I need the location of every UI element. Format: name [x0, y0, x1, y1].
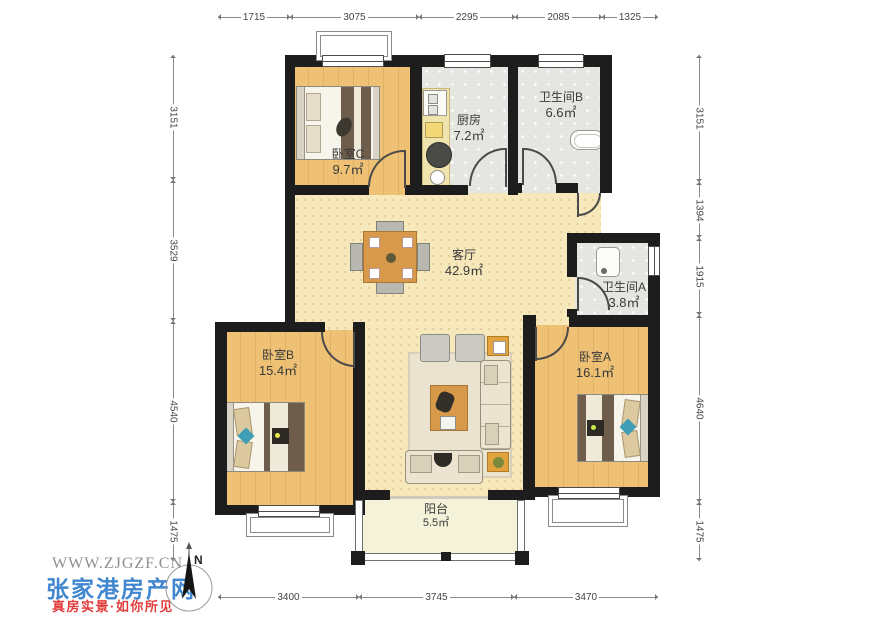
watermark-slogan: 真房实景·如你所见: [52, 596, 174, 615]
tray-dot: [591, 425, 596, 430]
balcony-glass-left: [355, 500, 363, 553]
bed-bedroom-a: [577, 394, 649, 462]
living-room-label: 客厅 42.9㎡: [424, 248, 504, 279]
sofa-item: [434, 453, 452, 467]
balcony-post: [351, 551, 365, 565]
room-area: 6.6㎡: [521, 105, 601, 121]
dimension-top-1: 1715: [218, 10, 290, 24]
bed-tray: [587, 420, 604, 436]
dimension-label: 4540: [168, 398, 179, 424]
room-name: 阳台: [396, 502, 476, 517]
door-leaf-bathroomA: [577, 277, 579, 311]
balcony-threshold: [390, 496, 488, 499]
dimension-label: 1915: [694, 263, 705, 289]
sink-basin: [428, 94, 438, 104]
plant: [493, 457, 504, 468]
plate: [369, 268, 380, 279]
bed-headboard: [640, 395, 648, 461]
tray-dot: [275, 433, 280, 438]
armchair: [420, 334, 450, 362]
dimension-label: 3151: [694, 105, 705, 131]
side-table: [487, 336, 509, 356]
wall-bathA-top: [567, 233, 660, 243]
window-bedroomC: [322, 55, 384, 67]
bathtub-inner: [574, 134, 602, 148]
side-table: [487, 452, 509, 472]
dimension-right-1: 3151: [692, 55, 706, 182]
table-centerpiece: [386, 253, 396, 263]
wall-bedroomB-top: [215, 322, 325, 332]
door-leaf-bedroomB: [353, 332, 355, 368]
bed-pillow: [233, 440, 253, 469]
room-area: 7.2㎡: [429, 128, 509, 144]
balcony-label: 阳台 5.5㎡: [396, 502, 476, 531]
wall-living-bottom: [365, 490, 390, 500]
dimension-right-2: 1394: [692, 182, 706, 238]
wall-bedroomC-bottom: [285, 185, 369, 195]
dimension-label: 4640: [694, 395, 705, 421]
wall-bathA-left: [567, 233, 577, 277]
bed-headboard: [297, 87, 305, 159]
bed-bedroom-b: [225, 402, 305, 472]
wall-kitchen-right: [508, 55, 518, 195]
dimension-label: 3470: [573, 592, 599, 603]
door-leaf-bedroomA: [535, 327, 537, 361]
dimension-label: 3400: [275, 592, 301, 603]
door-leaf-bathroomB: [522, 148, 524, 185]
dimension-label: 1715: [241, 12, 267, 23]
bathroom-b-label: 卫生间B 6.6㎡: [521, 90, 601, 121]
door-leaf-bedroomC: [404, 150, 406, 188]
dimension-top-4: 2085: [515, 10, 602, 24]
plate: [402, 268, 413, 279]
dimension-label: 2295: [454, 12, 480, 23]
window-bathroomA: [648, 246, 660, 276]
window-bedroomA: [558, 487, 620, 499]
washing-machine: [596, 247, 620, 277]
room-name: 卧室A: [555, 350, 635, 365]
bed-pillow: [621, 430, 640, 458]
dimension-label: 3151: [168, 104, 179, 130]
sofa-cushion: [484, 365, 498, 385]
washer-dial: [601, 268, 607, 274]
coffee-table: [430, 385, 468, 431]
lamp: [493, 341, 506, 354]
dimension-label: 3745: [423, 592, 449, 603]
room-area: 3.8㎡: [589, 295, 659, 311]
bedroom-a-label: 卧室A 16.1㎡: [555, 350, 635, 381]
door-leaf-entry: [577, 193, 579, 217]
dimension-bottom-3: 3470: [514, 590, 658, 604]
room-area: 15.4㎡: [238, 363, 318, 379]
room-name: 卧室C: [308, 147, 388, 162]
floor-plan-canvas: 卧室C 9.7㎡ 厨房 7.2㎡ 卫生间B 6.6㎡ 客厅 42.9㎡ 卫生间A…: [0, 0, 880, 625]
dimension-label: 1394: [694, 197, 705, 223]
room-area: 42.9㎡: [424, 263, 504, 279]
balcony-glass-right: [517, 500, 525, 553]
dining-table: [363, 231, 417, 283]
sofa-long: [480, 360, 511, 450]
dimension-top-2: 3075: [290, 10, 419, 24]
sofa-cushion: [458, 455, 480, 473]
remote: [440, 416, 456, 430]
kitchen-stove: [426, 142, 452, 168]
window-kitchen: [444, 54, 491, 68]
dimension-right-3: 1915: [692, 238, 706, 315]
wall-bedroomC-right: [410, 55, 422, 195]
room-area: 16.1㎡: [555, 365, 635, 381]
wall-right-upper: [600, 55, 612, 193]
dimension-bottom-1: 3400: [218, 590, 359, 604]
room-name: 卫生间A: [589, 280, 659, 295]
compass-north-label: N: [194, 553, 203, 567]
dimension-left-1: 3151: [166, 55, 180, 180]
dimension-label: 1475: [694, 518, 705, 544]
dimension-label: 1325: [617, 12, 643, 23]
dimension-top-5: 1325: [602, 10, 658, 24]
bedroom-b-label: 卧室B 15.4㎡: [238, 348, 318, 379]
plate: [402, 237, 413, 248]
dimension-label: 1475: [168, 518, 179, 544]
balcony-post: [515, 551, 529, 565]
dimension-label: 2085: [545, 12, 571, 23]
wall-bathB-bottom: [508, 183, 522, 193]
tray: [434, 390, 456, 415]
wall-bedroomA-left: [523, 315, 535, 500]
wall-kitchen-bottom: [418, 185, 468, 195]
window-bathroomB: [538, 54, 584, 68]
bedroom-c-label: 卧室C 9.7㎡: [308, 147, 388, 178]
dimension-right-5: 1475: [692, 502, 706, 561]
sofa-loveseat: [405, 450, 483, 484]
dimension-label: 3529: [168, 237, 179, 263]
dimension-left-3: 4540: [166, 321, 180, 502]
dimension-bottom-2: 3745: [359, 590, 514, 604]
dimension-left-2: 3529: [166, 180, 180, 321]
room-name: 卧室B: [238, 348, 318, 363]
wall-bathB-bottom: [601, 183, 612, 193]
wall-left-lower: [215, 322, 227, 515]
wall-bedroomA-top: [569, 315, 660, 327]
wall-living-bottom: [488, 490, 533, 500]
dimension-label: 3075: [341, 12, 367, 23]
balcony-mullion: [441, 552, 451, 561]
dining-chair: [350, 243, 363, 271]
kitchen-pot: [430, 170, 445, 185]
bathtub: [570, 130, 604, 150]
bay-window-bedroomA: [548, 495, 628, 527]
sofa-cushion: [410, 455, 432, 473]
window-bedroomB: [258, 505, 320, 517]
bed-pillow: [306, 93, 321, 121]
room-name: 客厅: [424, 248, 504, 263]
sofa-cushion: [485, 423, 499, 445]
plate: [369, 237, 380, 248]
room-area: 9.7㎡: [308, 162, 388, 178]
wall-bathB-bottom: [556, 183, 578, 193]
armchair: [455, 334, 485, 362]
dimension-right-4: 4640: [692, 315, 706, 502]
kitchen-label: 厨房 7.2㎡: [429, 113, 509, 144]
room-name: 卫生间B: [521, 90, 601, 105]
bathroom-a-label: 卫生间A 3.8㎡: [589, 280, 659, 311]
room-area: 5.5㎡: [396, 517, 476, 531]
bed-tray: [272, 428, 289, 444]
compass-icon: [162, 542, 216, 616]
room-name: 厨房: [429, 113, 509, 128]
door-leaf-kitchen: [505, 148, 507, 187]
dimension-top-3: 2295: [419, 10, 515, 24]
